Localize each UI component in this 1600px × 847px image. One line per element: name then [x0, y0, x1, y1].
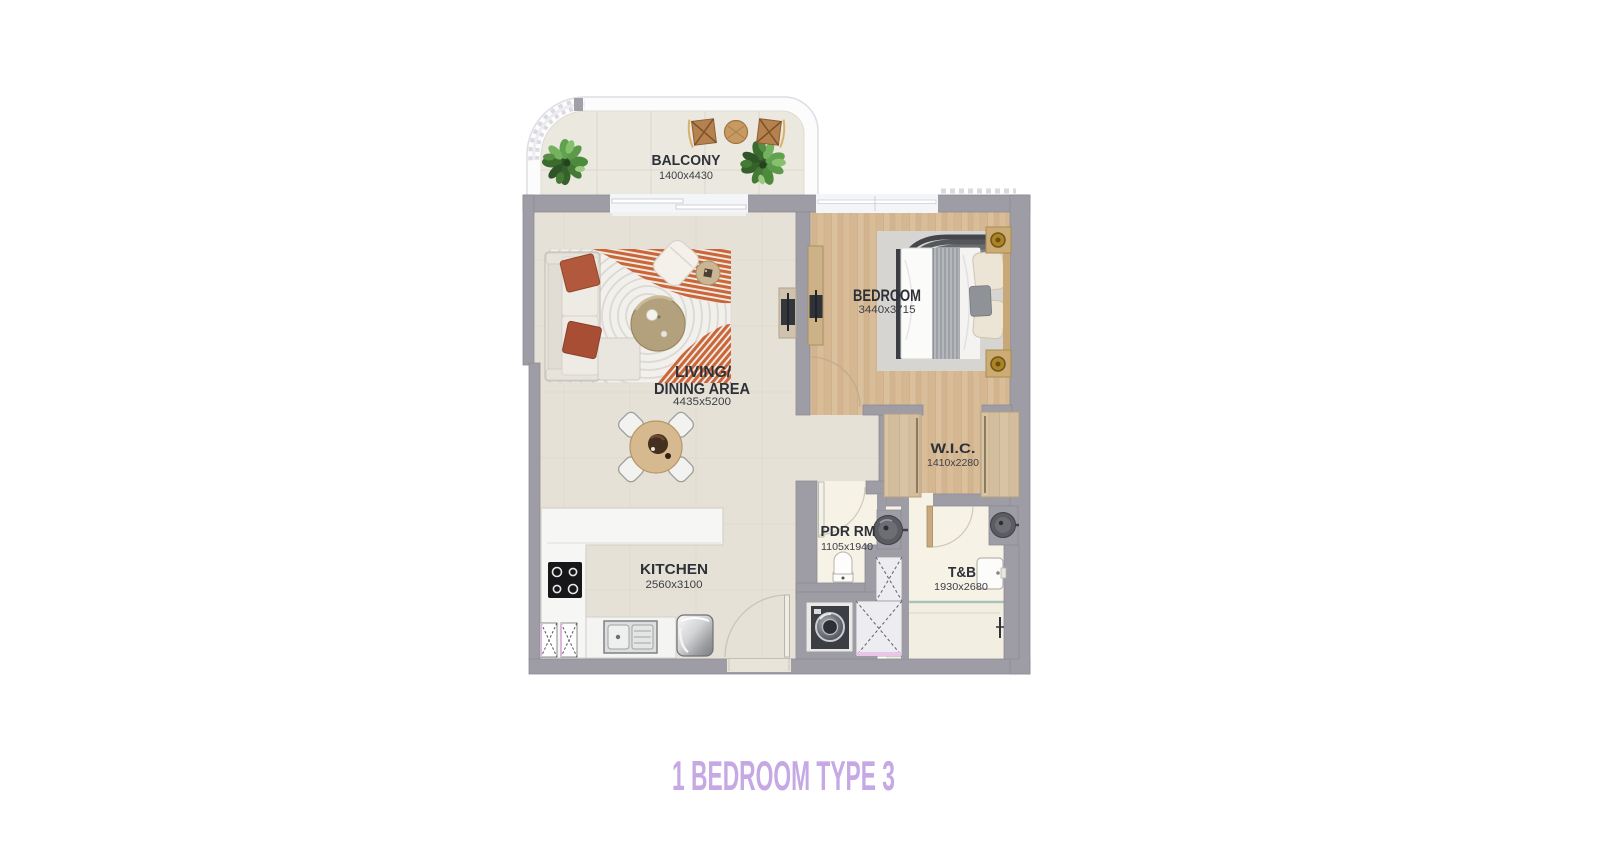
svg-text:2560x3100: 2560x3100: [646, 579, 703, 591]
svg-text:4435x5200: 4435x5200: [673, 396, 731, 408]
svg-text:BEDROOM: BEDROOM: [853, 287, 921, 305]
svg-text:T&B: T&B: [948, 564, 976, 581]
svg-text:3440x3715: 3440x3715: [859, 304, 916, 316]
svg-text:BALCONY: BALCONY: [652, 153, 721, 169]
svg-text:1930x2680: 1930x2680: [934, 581, 988, 593]
svg-text:W.I.C.: W.I.C.: [931, 440, 976, 456]
svg-text:LIVING/: LIVING/: [675, 364, 732, 381]
svg-text:1400x4430: 1400x4430: [659, 170, 713, 182]
svg-text:PDR RM: PDR RM: [821, 524, 876, 540]
svg-text:1410x2280: 1410x2280: [927, 457, 979, 469]
svg-text:1 BEDROOM TYPE 3: 1 BEDROOM TYPE 3: [672, 752, 895, 799]
svg-text:KITCHEN: KITCHEN: [640, 562, 708, 578]
svg-text:1105x1940: 1105x1940: [821, 541, 873, 553]
